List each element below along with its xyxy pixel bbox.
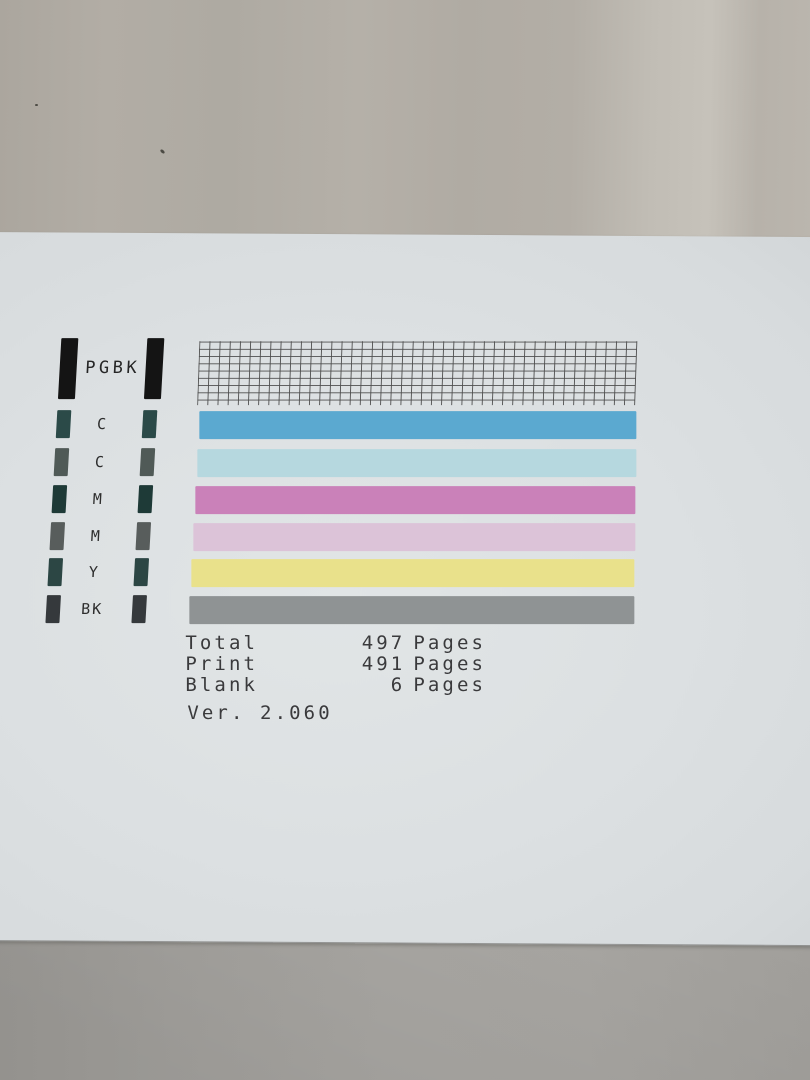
ink-color-bar-BK-5 [189, 596, 634, 624]
ink-swatch-right [133, 558, 149, 586]
pgbk-bar-right [144, 338, 164, 399]
counter-row-print: Print491Pages [185, 654, 486, 674]
counter-row-total: Total497Pages [185, 633, 486, 653]
counter-label: Blank [185, 675, 361, 695]
ink-swatch-right [135, 522, 151, 550]
ink-swatch-left [47, 558, 63, 586]
ink-color-bar-C-1 [197, 449, 636, 477]
counter-unit: Pages [413, 675, 486, 695]
counter-unit: Pages [413, 633, 486, 653]
nozzle-check-pattern: PGBK CCMMYBK Total497Pages Print491Pages… [0, 232, 809, 940]
ink-label: M [74, 485, 124, 513]
ink-swatch-left [56, 410, 72, 438]
counter-value: 497 [361, 633, 405, 653]
counter-value: 6 [361, 675, 405, 695]
printed-content: PGBK CCMMYBK Total497Pages Print491Pages… [0, 232, 810, 945]
counter-label: Total [185, 633, 361, 653]
fabric-speck [35, 104, 38, 106]
ink-label: Y [69, 558, 119, 586]
ink-swatch-right [131, 595, 147, 623]
ink-swatch-right [138, 485, 154, 513]
counter-unit: Pages [413, 654, 486, 674]
ink-color-bar-M-2 [195, 486, 635, 514]
ink-label: M [71, 522, 121, 550]
test-page-paper: PGBK CCMMYBK Total497Pages Print491Pages… [0, 232, 810, 946]
ink-label: C [78, 410, 128, 438]
ink-label: C [76, 448, 126, 476]
ink-label: BK [67, 595, 117, 623]
ink-swatch-left [45, 595, 61, 623]
counter-row-blank: Blank6Pages [185, 675, 486, 695]
ink-swatch-left [54, 448, 70, 476]
ink-swatch-right [140, 448, 156, 476]
ink-color-bar-M-3 [193, 523, 635, 551]
ink-color-bar-C-0 [199, 411, 636, 439]
counter-label: Print [185, 654, 361, 674]
firmware-version: Ver. 2.060 [187, 702, 332, 724]
counter-value: 491 [361, 654, 405, 674]
pgbk-label: PGBK [78, 338, 147, 399]
pgbk-bar-left [58, 338, 78, 399]
ink-swatch-right [142, 410, 158, 438]
ink-color-bar-Y-4 [191, 559, 634, 587]
ink-swatch-left [52, 485, 68, 513]
ink-swatch-left [49, 522, 65, 550]
